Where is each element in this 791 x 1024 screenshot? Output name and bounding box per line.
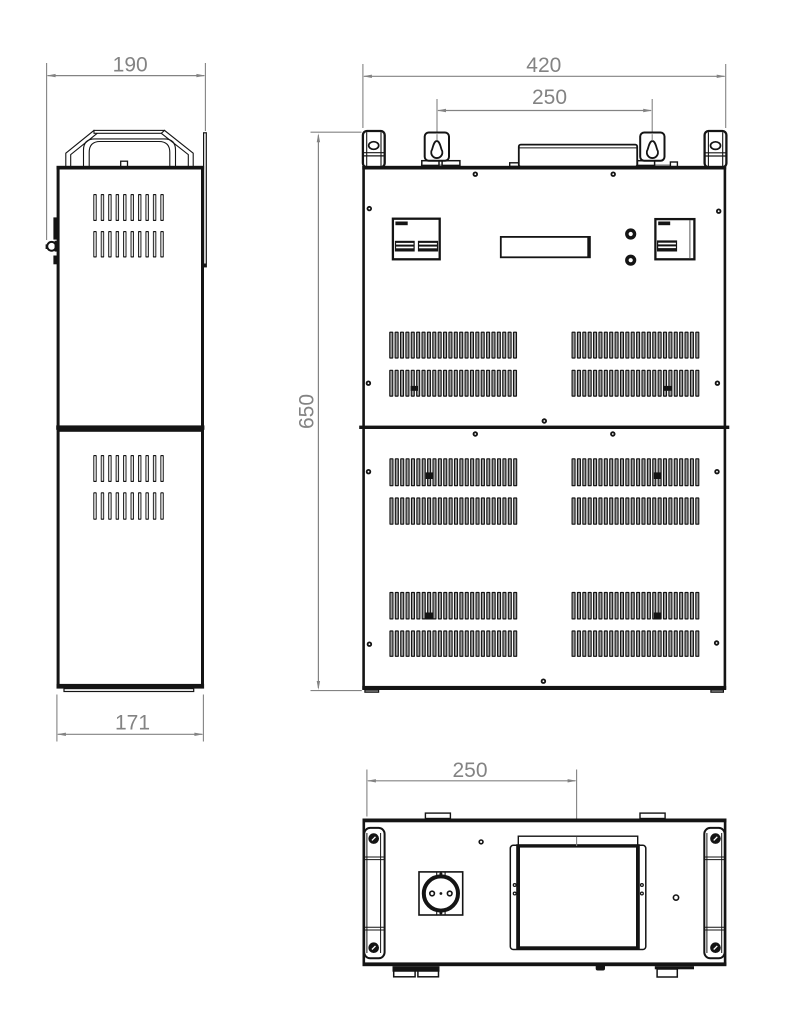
svg-text:190: 190	[113, 54, 148, 77]
svg-text:650: 650	[296, 394, 319, 429]
svg-text:250: 250	[532, 86, 567, 109]
svg-text:250: 250	[452, 759, 487, 782]
svg-text:420: 420	[526, 54, 561, 77]
svg-text:171: 171	[115, 712, 150, 735]
